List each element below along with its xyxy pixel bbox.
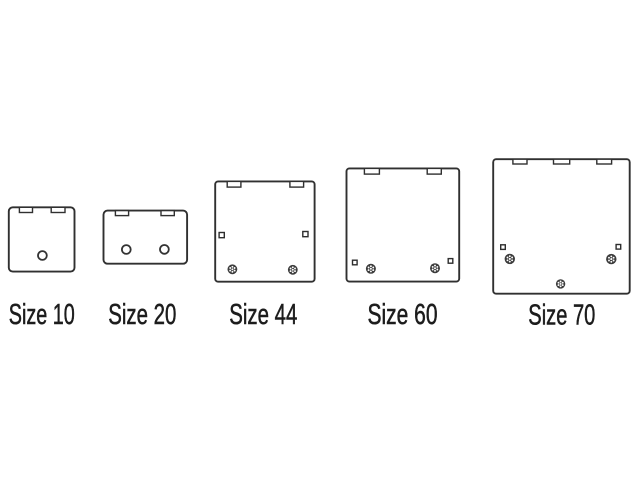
svg-text:Size 70: Size 70 [528, 300, 595, 332]
svg-text:Size 44: Size 44 [229, 299, 297, 331]
svg-text:Size 60: Size 60 [368, 299, 438, 331]
svg-text:Size 20: Size 20 [108, 299, 176, 331]
svg-text:Size 10: Size 10 [9, 299, 75, 331]
